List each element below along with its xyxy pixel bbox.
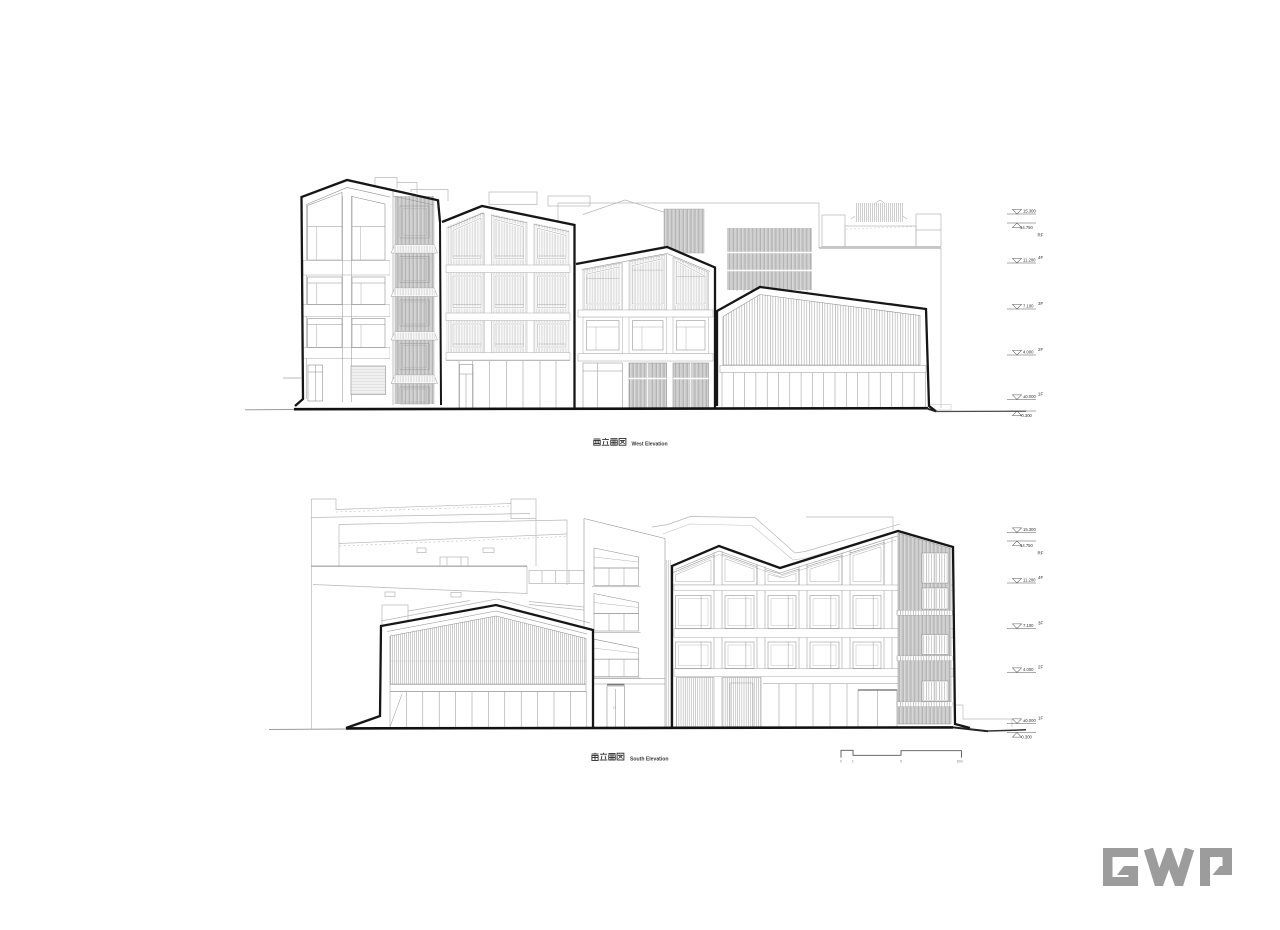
svg-text:5: 5 xyxy=(900,760,902,764)
svg-text:3F: 3F xyxy=(1038,301,1043,306)
svg-text:4.000: 4.000 xyxy=(1023,667,1034,672)
svg-text:7.100: 7.100 xyxy=(1023,623,1034,628)
svg-text:4F: 4F xyxy=(1038,575,1043,580)
svg-text:±0.000: ±0.000 xyxy=(1023,718,1036,723)
svg-text:11.200: 11.200 xyxy=(1023,258,1036,263)
svg-text:15.300: 15.300 xyxy=(1023,209,1036,214)
svg-text:14.750: 14.750 xyxy=(1020,543,1033,548)
svg-text:2F: 2F xyxy=(1038,347,1043,352)
svg-text:3F: 3F xyxy=(1038,621,1043,626)
svg-text:7.100: 7.100 xyxy=(1023,304,1034,309)
svg-text:15.300: 15.300 xyxy=(1023,527,1036,532)
svg-text:1F: 1F xyxy=(1038,716,1043,721)
svg-text:0: 0 xyxy=(840,760,842,764)
svg-text:-0.300: -0.300 xyxy=(1020,735,1033,740)
svg-text:South Elevation: South Elevation xyxy=(630,756,669,762)
svg-text:-0.300: -0.300 xyxy=(1020,413,1033,418)
svg-text:±0.000: ±0.000 xyxy=(1023,394,1036,399)
svg-text:2F: 2F xyxy=(1038,665,1043,670)
svg-text:RF: RF xyxy=(1038,551,1044,556)
svg-text:4.000: 4.000 xyxy=(1023,350,1034,355)
svg-text:11.200: 11.200 xyxy=(1023,578,1036,583)
svg-text:1: 1 xyxy=(852,760,854,764)
svg-text:West Elevation: West Elevation xyxy=(632,441,668,447)
svg-text:1F: 1F xyxy=(1038,392,1043,397)
svg-text:10m: 10m xyxy=(957,760,964,764)
svg-text:4F: 4F xyxy=(1038,255,1043,260)
svg-text:RF: RF xyxy=(1038,233,1044,238)
svg-text:( ): ( ) xyxy=(613,706,616,710)
svg-text:14.750: 14.750 xyxy=(1020,225,1033,230)
